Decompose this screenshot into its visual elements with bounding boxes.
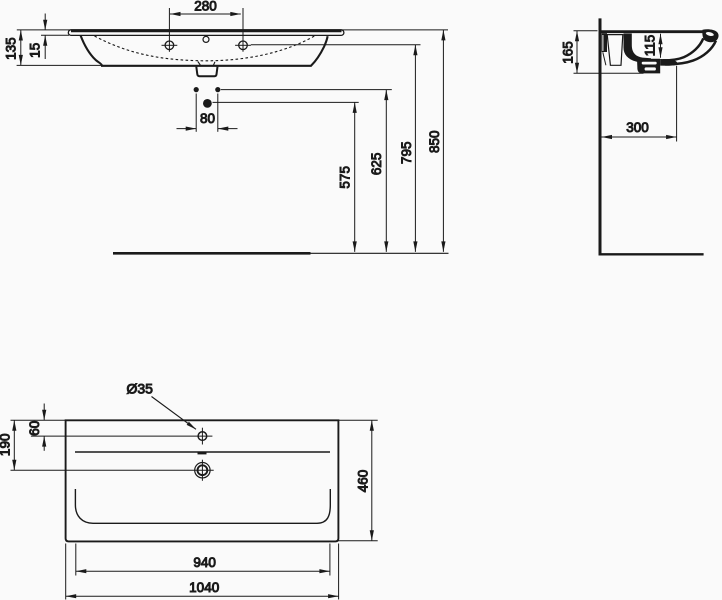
svg-text:115: 115 xyxy=(643,35,658,57)
svg-text:460: 460 xyxy=(355,470,370,493)
svg-text:300: 300 xyxy=(626,120,649,135)
svg-text:1040: 1040 xyxy=(189,580,219,595)
svg-text:60: 60 xyxy=(27,421,42,436)
svg-text:575: 575 xyxy=(337,166,352,189)
svg-text:15: 15 xyxy=(28,43,43,58)
svg-text:135: 135 xyxy=(3,37,18,60)
svg-text:190: 190 xyxy=(0,434,13,457)
svg-text:165: 165 xyxy=(561,41,576,64)
svg-text:795: 795 xyxy=(399,142,414,165)
svg-text:850: 850 xyxy=(427,130,442,153)
svg-text:280: 280 xyxy=(194,0,217,13)
svg-text:625: 625 xyxy=(369,153,384,176)
svg-text:940: 940 xyxy=(193,555,216,570)
svg-text:80: 80 xyxy=(200,111,215,126)
svg-text:Ø35: Ø35 xyxy=(126,380,153,396)
